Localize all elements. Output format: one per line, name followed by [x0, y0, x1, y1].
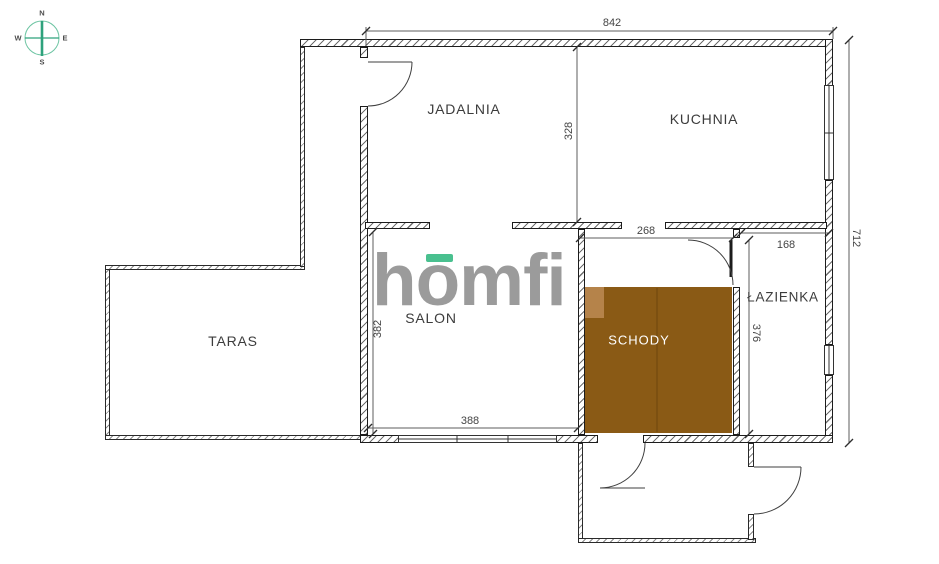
dim-right-height: 712: [850, 229, 862, 247]
room-label-jadalnia: JADALNIA: [427, 101, 500, 117]
room-label-schody: SCHODY: [608, 333, 670, 348]
floor-plan-canvas: homfi: [0, 0, 939, 564]
compass-icon: [25, 21, 59, 56]
dim-bathroom-width: 168: [777, 239, 795, 251]
dim-salon-width: 388: [461, 415, 479, 427]
compass-east-label: E: [62, 34, 67, 43]
window-mullions: [398, 85, 834, 443]
door-vestibule-outer: [754, 467, 801, 514]
room-label-kuchnia: KUCHNIA: [670, 111, 739, 127]
compass-north-label: N: [39, 9, 44, 18]
compass-west-label: W: [14, 34, 21, 43]
dim-stairs-width: 268: [637, 225, 655, 237]
dim-upper-depth: 328: [563, 122, 575, 140]
door-stairs: [688, 240, 733, 285]
room-label-lazienka: ŁAZIENKA: [747, 290, 819, 305]
plan-linework: [0, 0, 939, 564]
door-vestibule-inner: [600, 443, 645, 488]
door-jadalnia: [368, 62, 412, 106]
room-label-taras: TARAS: [208, 333, 258, 349]
dim-total-width: 842: [603, 17, 621, 29]
dim-salon-depth: 382: [372, 320, 384, 338]
dimension-lines: [366, 27, 849, 443]
dimension-ticks: [362, 27, 853, 447]
compass-south-label: S: [39, 58, 44, 67]
room-label-salon: SALON: [405, 310, 456, 326]
dim-bathroom-depth: 376: [750, 324, 762, 342]
